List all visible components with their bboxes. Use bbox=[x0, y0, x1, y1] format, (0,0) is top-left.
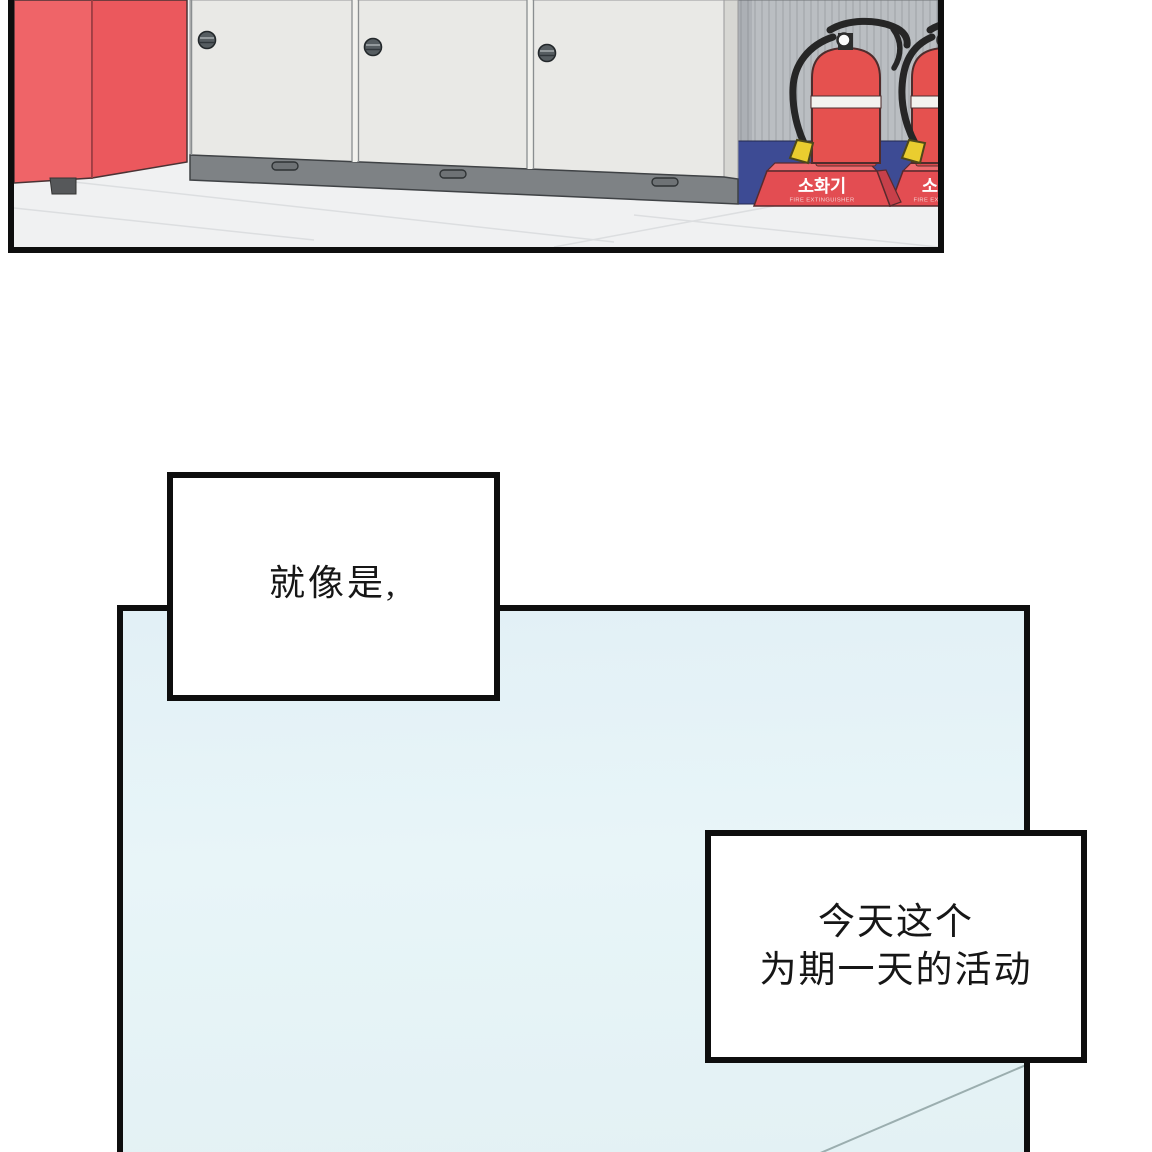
scene-panel: 소화기 FIRE EXTINGUISHER 소화기 FIRE EXTINGUIS… bbox=[8, 0, 944, 253]
scene-illustration: 소화기 FIRE EXTINGUISHER 소화기 FIRE EXTINGUIS… bbox=[14, 0, 938, 247]
caption-box-1: 就像是, bbox=[167, 472, 500, 701]
cabinet-foot bbox=[50, 178, 76, 194]
caption-2-line-1: 今天这个 bbox=[818, 899, 974, 947]
caption-1-text: 就像是, bbox=[269, 554, 398, 606]
storage-lockers bbox=[190, 0, 738, 204]
comic-page: 소화기 FIRE EXTINGUISHER 소화기 FIRE EXTINGUIS… bbox=[0, 0, 1152, 1152]
floor-edge-line bbox=[811, 1062, 1024, 1152]
caption-2-line-2: 为期一天的活动 bbox=[760, 947, 1033, 995]
stand-label-en: FIRE EXTINGUISHER bbox=[913, 198, 938, 204]
stand-label-ko: 소화기 bbox=[922, 176, 938, 196]
locker-knob-3 bbox=[539, 45, 556, 62]
red-cabinet bbox=[14, 0, 187, 194]
locker-knob-1 bbox=[199, 32, 216, 49]
locker-knob-2 bbox=[365, 39, 382, 56]
stand-label-ko: 소화기 bbox=[798, 176, 846, 196]
caption-box-2: 今天这个 为期一天的活动 bbox=[705, 830, 1087, 1063]
stand-label-en: FIRE EXTINGUISHER bbox=[789, 198, 854, 204]
